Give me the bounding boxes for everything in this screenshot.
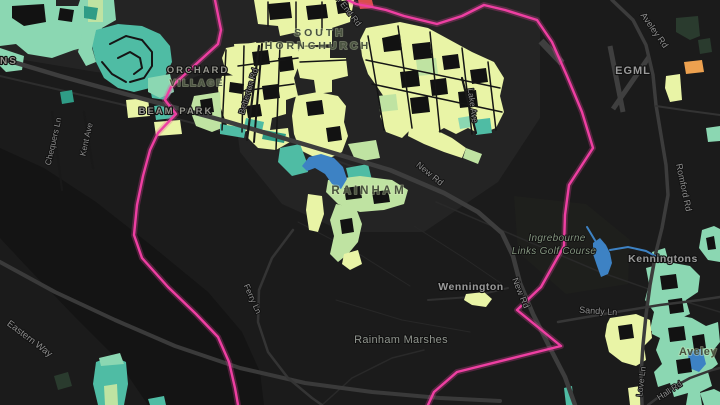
parcel-beampark-darkteal [60, 90, 74, 104]
map-label-ns: NS [0, 56, 18, 67]
map-label-ingrebourne: Ingrebourne [528, 233, 585, 244]
map-label-egml: EGML [615, 65, 651, 77]
parcel-gap [410, 96, 430, 114]
parcel-gap [430, 78, 448, 96]
parcel-gap [660, 274, 678, 290]
parcel-gap [340, 218, 354, 234]
map-label-kenningtons: Kenningtons [628, 253, 698, 265]
parcel-gap [58, 8, 74, 22]
parcel-mint-east-edge-1 [706, 126, 720, 142]
parcel-darkteal-nw [84, 6, 98, 20]
parcel-orange-egml [684, 60, 704, 74]
parcel-gap [442, 54, 460, 70]
map-label-wennington: Wennington [438, 281, 503, 293]
parcel-gap [676, 358, 692, 374]
parcel-gap [618, 324, 634, 340]
parcel-gap [412, 42, 432, 60]
map-label-beam-park: BEAM PARK [139, 106, 214, 117]
map-label-aveley: Aveley [679, 346, 717, 358]
parcel-gap [668, 326, 686, 342]
parcel-gap [306, 4, 328, 20]
parcel-darkgreen-ne-2 [698, 38, 712, 54]
map-label-orchard: ORCHARD [167, 65, 230, 76]
parcel-gap [668, 298, 684, 314]
parcel-gap [268, 2, 292, 20]
parcel-gap [326, 126, 342, 142]
parcel-southwest-lg [104, 384, 118, 405]
map-label-hornchurch: HORNCHURCH [265, 40, 371, 52]
map-viewport[interactable]: SOUTHHORNCHURCHORCHARDVILLAGEBEAM PARKNS… [0, 0, 720, 405]
map-label-south: SOUTH [294, 27, 346, 39]
map-label-rainham-marshes: Rainham Marshes [354, 334, 448, 346]
map-label-links-golf-course: Links Golf Course [512, 246, 597, 257]
parcel-gap [400, 70, 420, 88]
map-label-village: VILLAGE [169, 78, 224, 89]
map-canvas[interactable]: SOUTHHORNCHURCHORCHARDVILLAGEBEAM PARKNS… [0, 0, 720, 405]
map-label-rainham: RAINHAM [331, 185, 406, 197]
parcel-gap [306, 100, 324, 116]
